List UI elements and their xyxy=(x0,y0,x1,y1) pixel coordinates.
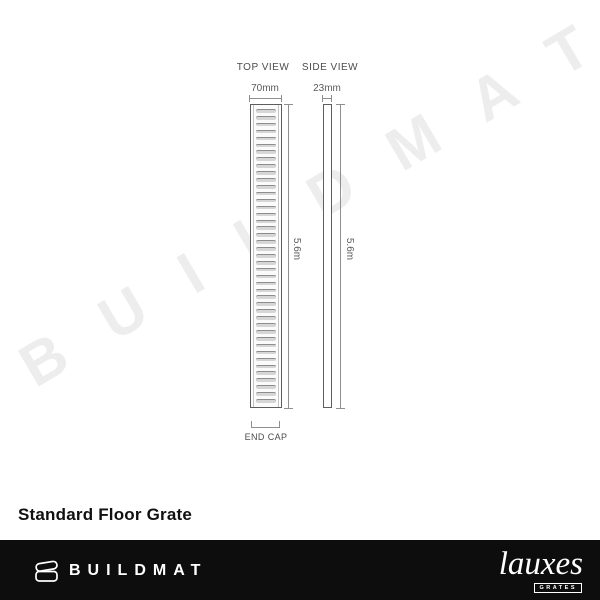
grate-slat xyxy=(256,392,276,396)
top-view-width-dim-line xyxy=(249,98,282,99)
lauxes-grates-badge: GRATES xyxy=(534,583,582,593)
grate-slat xyxy=(256,268,276,272)
grate-slat xyxy=(256,316,276,320)
dim-tick xyxy=(331,95,332,102)
grate-slat xyxy=(256,323,276,327)
grate-slat xyxy=(256,344,276,348)
dim-tick xyxy=(336,104,345,105)
grate-slat xyxy=(256,358,276,362)
dim-tick xyxy=(249,95,250,102)
lauxes-logo: lauxes GRATES xyxy=(488,545,583,597)
grate-slat xyxy=(256,150,276,154)
side-view-length-dim-line xyxy=(340,104,341,409)
dim-tick xyxy=(284,104,293,105)
grate-slat xyxy=(256,371,276,375)
grate-slat xyxy=(256,275,276,279)
end-cap-label: END CAP xyxy=(221,432,311,442)
grate-slat xyxy=(256,109,276,113)
grate-slat xyxy=(256,144,276,148)
dim-tick xyxy=(251,421,252,427)
end-cap-dim-line xyxy=(251,427,280,428)
page-title: Standard Floor Grate xyxy=(18,505,192,525)
grate-slat xyxy=(256,295,276,299)
dim-tick xyxy=(284,408,293,409)
dim-tick xyxy=(336,408,345,409)
grate-slat xyxy=(256,213,276,217)
grate-slat xyxy=(256,365,276,369)
grate-slat xyxy=(256,399,276,403)
grate-slat xyxy=(256,309,276,313)
grate-slat xyxy=(256,226,276,230)
grate-slat xyxy=(256,240,276,244)
side-view-width-dim: 23mm xyxy=(297,83,357,94)
grate-slat xyxy=(256,171,276,175)
grate-slat xyxy=(256,116,276,120)
lauxes-wordmark: lauxes xyxy=(499,545,583,583)
grate-slat xyxy=(256,351,276,355)
grate-slat xyxy=(256,199,276,203)
side-view-label: SIDE VIEW xyxy=(285,62,375,73)
buildmat-watermark: B U I L D M A T xyxy=(1,0,600,400)
grate-slat xyxy=(256,254,276,258)
grate-slat xyxy=(256,261,276,265)
buildmat-wordmark: BUILDMAT xyxy=(69,562,207,580)
top-view-length-dim-line xyxy=(288,104,289,409)
side-view-length-dim: 5.6m xyxy=(343,234,355,264)
grate-slats xyxy=(256,109,276,403)
grate-slat xyxy=(256,137,276,141)
dim-tick xyxy=(322,95,323,102)
product-diagram-page: B U I L D M A T TOP VIEW SIDE VIEW 70mm … xyxy=(0,0,600,600)
buildmat-b-icon xyxy=(33,559,61,590)
grate-slat xyxy=(256,233,276,237)
grate-slat xyxy=(256,385,276,389)
grate-slat xyxy=(256,378,276,382)
top-view-width-dim: 70mm xyxy=(235,83,295,94)
grate-slat xyxy=(256,178,276,182)
top-view-length-dim: 5.6m xyxy=(290,234,302,264)
grate-slat xyxy=(256,289,276,293)
side-view-width-dim-line xyxy=(322,98,332,99)
grate-slat xyxy=(256,282,276,286)
grate-slat xyxy=(256,302,276,306)
grate-slat xyxy=(256,206,276,210)
side-view-drawing xyxy=(323,104,332,408)
dim-tick xyxy=(279,421,280,427)
grate-slat xyxy=(256,330,276,334)
grate-slat xyxy=(256,164,276,168)
grate-slat xyxy=(256,192,276,196)
grate-slat xyxy=(256,157,276,161)
grate-slat xyxy=(256,185,276,189)
grate-slat xyxy=(256,123,276,127)
grate-slat xyxy=(256,130,276,134)
dim-tick xyxy=(281,95,282,102)
grate-slat xyxy=(256,247,276,251)
grate-slat xyxy=(256,220,276,224)
grate-slat xyxy=(256,337,276,341)
top-view-grate-drawing xyxy=(250,104,282,408)
